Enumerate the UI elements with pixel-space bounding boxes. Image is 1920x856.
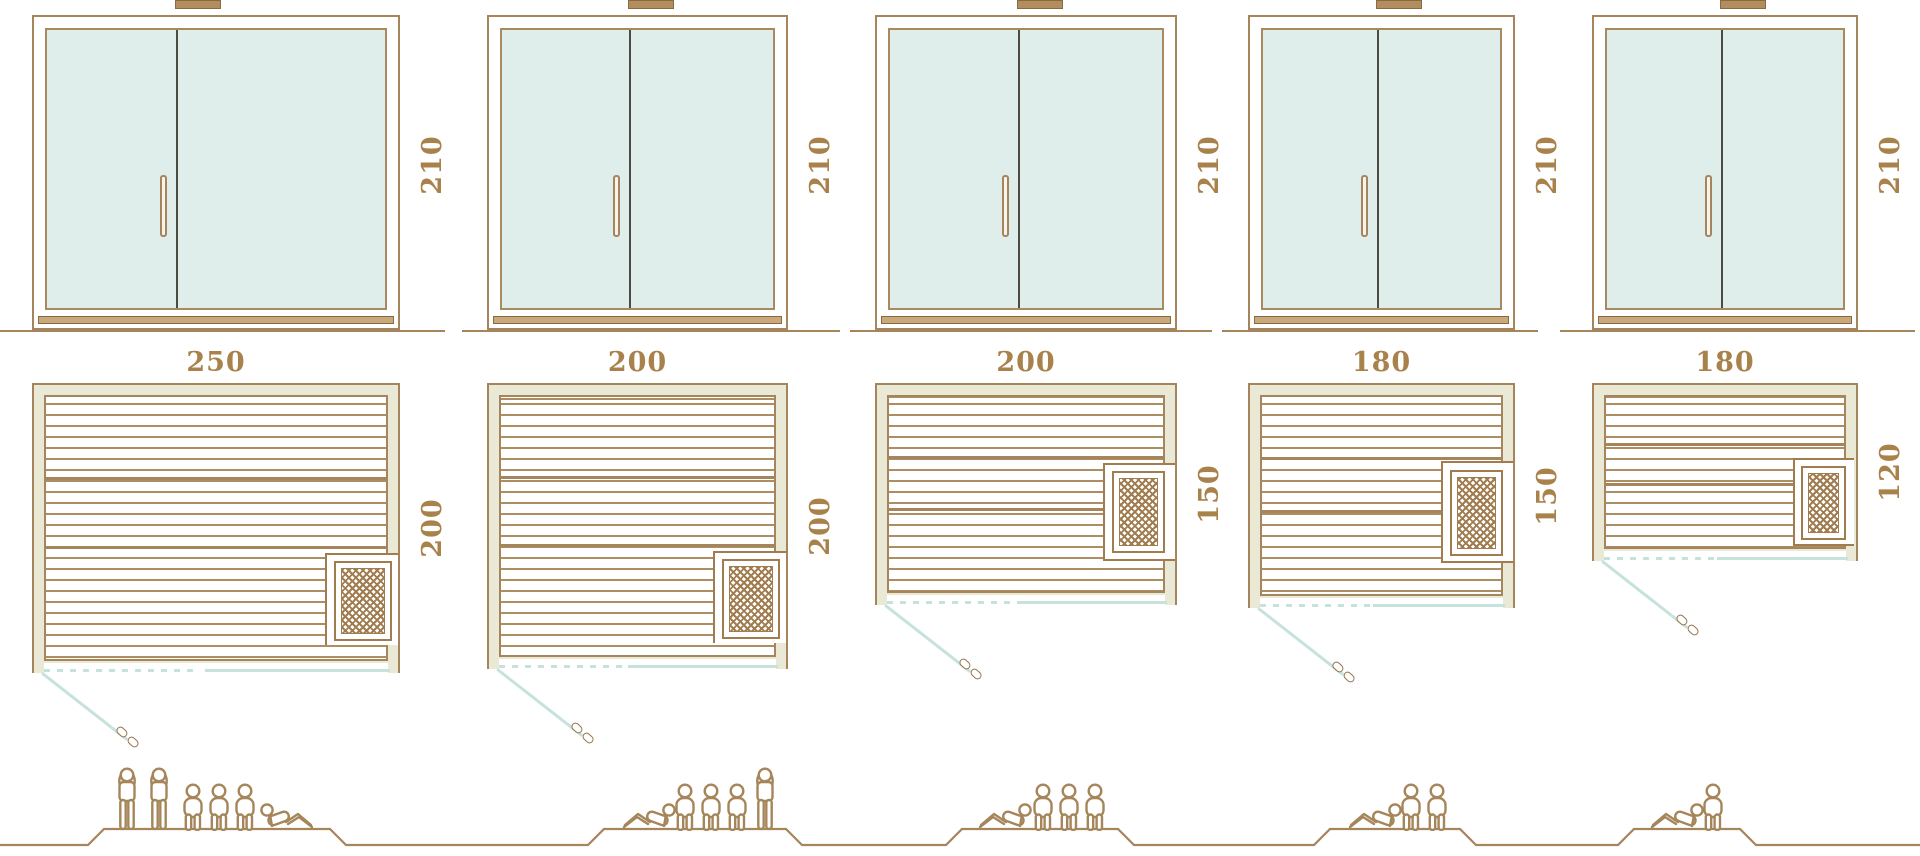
sitting-person-icon <box>1080 783 1110 831</box>
lying-person-icon <box>1640 801 1706 831</box>
lying-person-icon <box>1338 801 1404 831</box>
sitting-person-icon <box>1422 783 1452 831</box>
lying-person-icon <box>612 801 678 831</box>
ground-line <box>0 0 1920 856</box>
lying-person-icon <box>968 801 1034 831</box>
lying-person-icon <box>258 801 324 831</box>
sitting-person-icon <box>1698 783 1728 831</box>
sitting-person-icon <box>722 783 752 831</box>
sauna-comparison-diagram: 2102502002102002002102001502101801502101… <box>0 0 1920 856</box>
sitting-person-icon <box>230 783 260 831</box>
standing-person-icon <box>112 767 142 831</box>
standing-person-icon <box>144 767 174 831</box>
standing-person-icon <box>750 767 780 831</box>
floor-profile-line <box>0 829 1920 845</box>
